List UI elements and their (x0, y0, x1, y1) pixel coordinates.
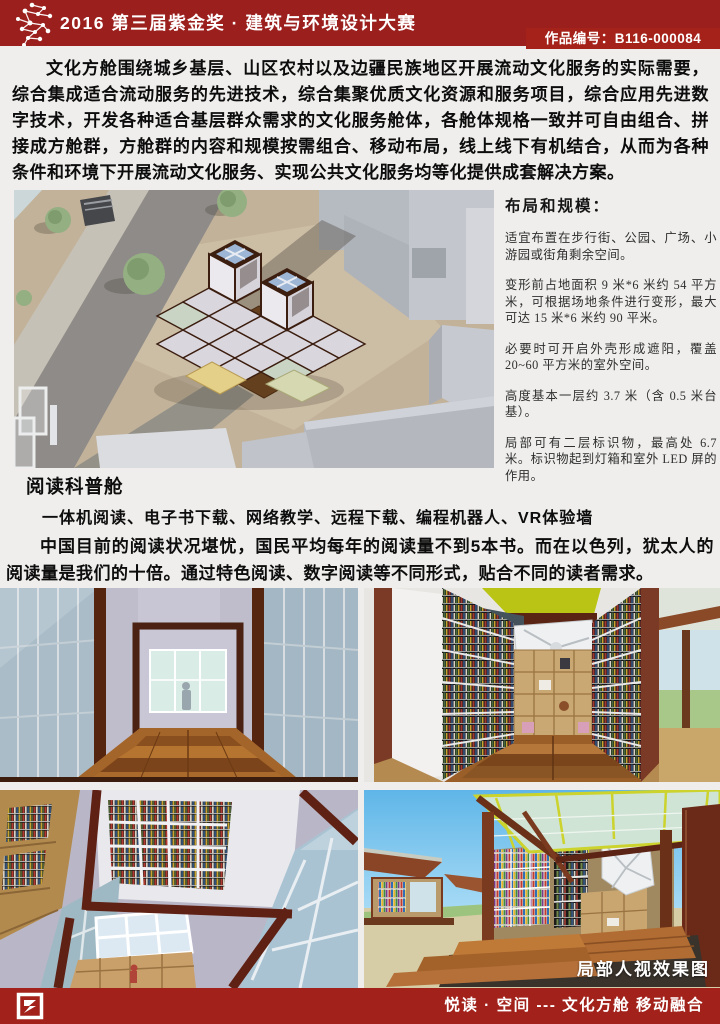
atrium-lookup-render (0, 790, 358, 988)
interior-corridor-render (0, 588, 358, 782)
reading-section: 阅读科普舱 一体机阅读、电子书下载、网络教学、远程下载、编程机器人、VR体验墙 … (0, 473, 720, 587)
aerial-plaza-render (14, 190, 494, 468)
spec-item-shell: 必要时可开启外壳形成遮阳，覆盖 20~60 平方米的室外空间。 (505, 341, 717, 374)
spec-item-footprint: 变形前占地面积 9 米*6 米约 54 平方米，可根据场地条件进行变形，最大可达… (505, 277, 717, 327)
intro-paragraph: 文化方舱围绕城乡基层、山区农村以及边疆民族地区开展流动文化服务的实际需要，综合集… (12, 56, 709, 186)
seal-logo-icon (16, 992, 44, 1020)
entry-number-badge: 作品编号：B116-000084 (526, 28, 720, 49)
reading-feature-line: 一体机阅读、电子书下载、网络教学、远程下载、编程机器人、VR体验墙 (0, 504, 720, 528)
specs-heading: 布局和规模： (505, 194, 717, 216)
header-bar: 2016 第三届紫金奖 · 建筑与环境设计大赛 作品编号：B116-000084 (0, 0, 720, 46)
reading-heading: 阅读科普舱 (26, 473, 720, 499)
competition-title: 2016 第三届紫金奖 · 建筑与环境设计大赛 (60, 0, 416, 46)
specs-panel: 布局和规模： 适宜布置在步行街、公园、广场、小游园或街角剩余空间。 变形前占地面… (505, 194, 717, 498)
bookshelf-room-render (364, 588, 720, 782)
reading-body: 中国目前的阅读状况堪忧，国民平均每年的阅读量不到5本书。而在以色列，犹太人的阅读… (0, 533, 720, 587)
footer-slogan: 悦读 · 空间 --- 文化方舱 移动融合 (444, 988, 704, 1024)
constellation-logo-icon (10, 1, 56, 46)
image-caption: 局部人视效果图 (577, 955, 710, 980)
footer-bar: 悦读 · 空间 --- 文化方舱 移动融合 (0, 988, 720, 1024)
spec-item-height: 高度基本一层约 3.7 米（含 0.5 米台基）。 (505, 388, 717, 421)
spec-item-location: 适宜布置在步行街、公园、广场、小游园或街角剩余空间。 (505, 230, 717, 263)
